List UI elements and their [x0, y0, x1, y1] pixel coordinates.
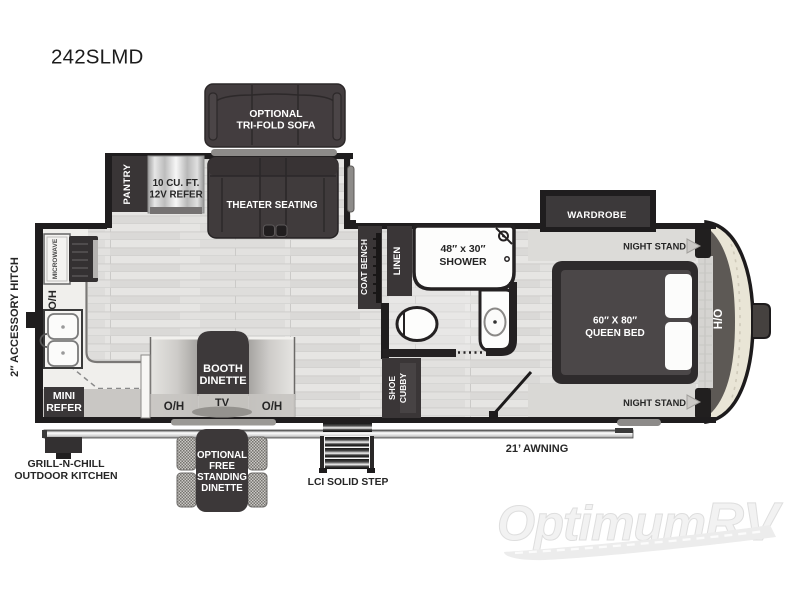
svg-text:10 CU. FT.: 10 CU. FT. — [153, 178, 200, 189]
svg-text:12V REFER: 12V REFER — [149, 190, 202, 201]
svg-text:THEATER SEATING: THEATER SEATING — [226, 200, 317, 211]
svg-text:LINEN: LINEN — [392, 247, 403, 276]
svg-text:DINETTE: DINETTE — [199, 375, 246, 387]
svg-text:GRILL-N-CHILL: GRILL-N-CHILL — [28, 458, 106, 470]
svg-text:MINI: MINI — [53, 390, 75, 402]
svg-text:21’ AWNING: 21’ AWNING — [506, 443, 569, 455]
svg-text:60″ X 80″: 60″ X 80″ — [593, 316, 637, 327]
svg-text:LCI SOLID STEP: LCI SOLID STEP — [308, 477, 389, 488]
svg-text:H/O: H/O — [713, 309, 725, 330]
svg-text:SHOE: SHOE — [387, 376, 397, 400]
svg-text:SHOWER: SHOWER — [439, 256, 487, 268]
svg-text:CUBBY: CUBBY — [398, 373, 408, 404]
svg-text:FREE: FREE — [209, 461, 235, 472]
svg-text:DINETTE: DINETTE — [201, 483, 243, 494]
svg-text:TV: TV — [215, 397, 230, 409]
svg-text:2″ ACCESSORY HITCH: 2″ ACCESSORY HITCH — [9, 257, 21, 377]
svg-text:TRI-FOLD SOFA: TRI-FOLD SOFA — [237, 121, 316, 132]
svg-text:NIGHT STAND: NIGHT STAND — [623, 242, 686, 252]
svg-text:COAT BENCH: COAT BENCH — [359, 239, 369, 295]
svg-text:BOOTH: BOOTH — [203, 363, 243, 375]
svg-text:48″ x 30″: 48″ x 30″ — [440, 243, 485, 255]
svg-text:O/H: O/H — [262, 401, 282, 413]
svg-text:NIGHT STAND: NIGHT STAND — [623, 398, 686, 408]
svg-text:242SLMD: 242SLMD — [51, 46, 144, 69]
svg-text:STANDING: STANDING — [197, 472, 247, 483]
svg-text:O/H: O/H — [164, 401, 184, 413]
svg-text:QUEEN BED: QUEEN BED — [585, 328, 644, 339]
svg-text:OUTDOOR KITCHEN: OUTDOOR KITCHEN — [14, 470, 117, 482]
svg-text:OPTIONAL: OPTIONAL — [249, 109, 302, 120]
svg-text:MICROWAVE: MICROWAVE — [52, 238, 59, 279]
svg-text:OPTIONAL: OPTIONAL — [197, 450, 247, 461]
svg-text:REFER: REFER — [46, 402, 82, 414]
svg-text:O/H: O/H — [47, 290, 59, 310]
svg-text:WARDROBE: WARDROBE — [567, 210, 627, 221]
svg-text:PANTRY: PANTRY — [122, 163, 133, 204]
